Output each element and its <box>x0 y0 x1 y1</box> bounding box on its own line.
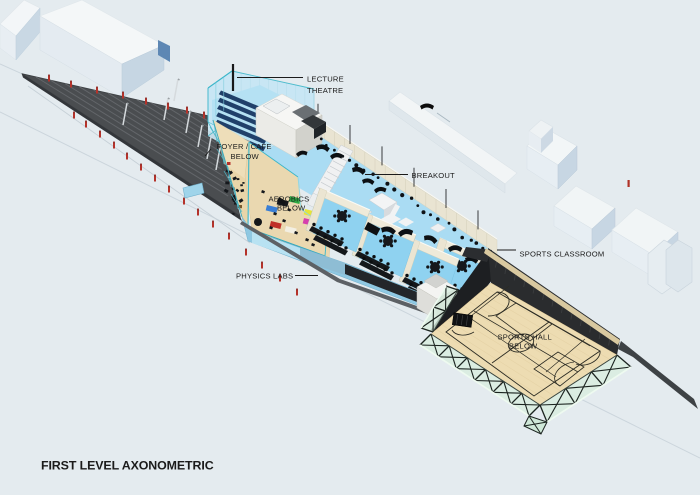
svg-text:BELOW: BELOW <box>231 152 260 161</box>
svg-text:FOYER / CAFE: FOYER / CAFE <box>217 142 272 151</box>
svg-text:SPORTS HALL: SPORTS HALL <box>498 333 552 342</box>
svg-text:FIRST LEVEL AXONOMETRIC: FIRST LEVEL AXONOMETRIC <box>41 459 214 473</box>
svg-text:BREAKOUT: BREAKOUT <box>412 171 456 180</box>
svg-text:LECTURE: LECTURE <box>307 75 344 84</box>
svg-text:BELOW: BELOW <box>509 342 538 351</box>
svg-text:BELOW: BELOW <box>277 204 306 213</box>
svg-text:AEROBICS: AEROBICS <box>269 195 310 204</box>
svg-text:THEATRE: THEATRE <box>307 86 343 95</box>
svg-text:PHYSICS LABS: PHYSICS LABS <box>236 272 293 281</box>
svg-text:SPORTS CLASSROOM: SPORTS CLASSROOM <box>520 250 605 259</box>
